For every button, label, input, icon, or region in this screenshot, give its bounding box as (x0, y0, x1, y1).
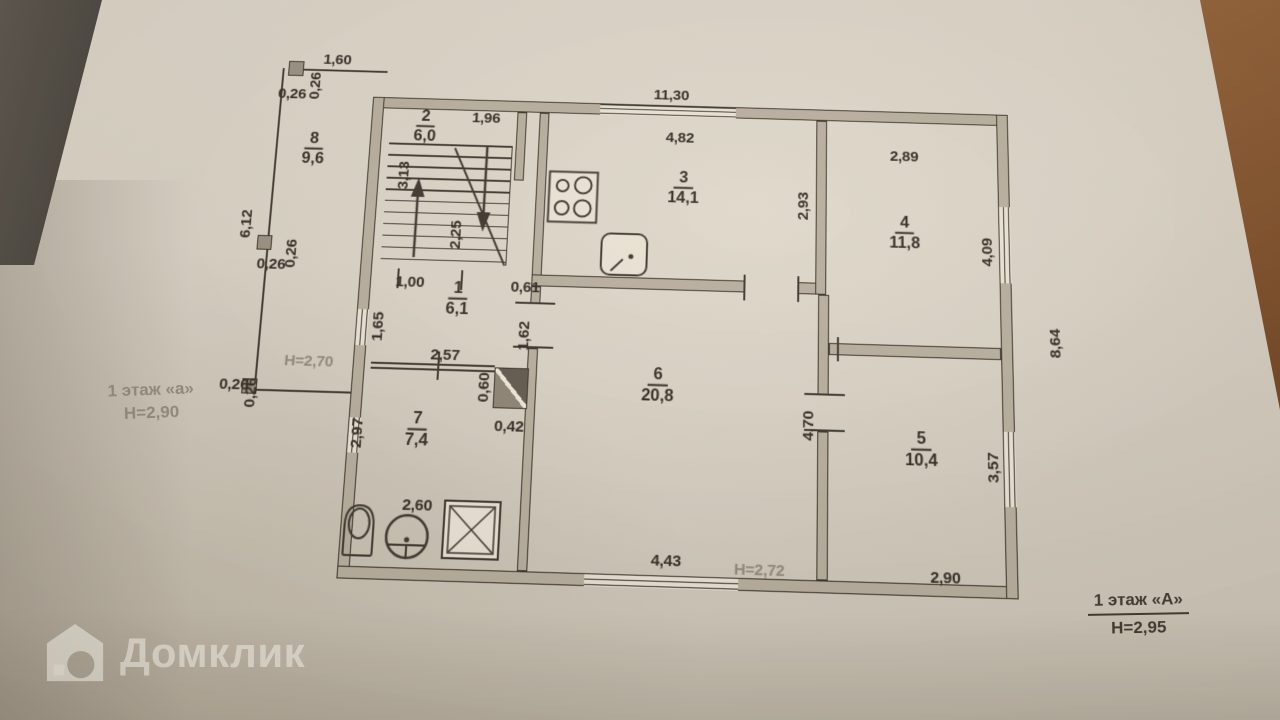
room-area: 9,6 (301, 149, 325, 167)
window-symbol (600, 103, 736, 118)
room-label-3: 3 14,1 (667, 169, 700, 207)
room-area: 7,4 (404, 430, 429, 450)
dimension-label: 3,13 (395, 161, 415, 189)
door-opening-tick (804, 393, 845, 396)
window-symbol (998, 207, 1012, 284)
ventilation-duct (493, 367, 530, 409)
dimension-label: 4,70 (800, 411, 819, 441)
dimension-label: 2,57 (430, 346, 460, 365)
annex-floor-label: 1 этаж «а» Н=2,90 (107, 379, 195, 425)
dimension-label: 0,26 (241, 378, 262, 408)
window-symbol (584, 573, 738, 591)
room-number: 6 (648, 366, 668, 387)
window-symbol (1003, 432, 1017, 508)
dimension-label: 0,60 (475, 372, 495, 402)
door-opening-tick (743, 275, 745, 301)
domclick-watermark: Домклик (44, 622, 305, 684)
wall-segment (829, 343, 1001, 360)
dimension-label: 2,89 (890, 148, 918, 166)
dimension-label: 1,96 (472, 110, 501, 128)
room-number: 1 (448, 279, 468, 300)
annex-floor-title: 1 этаж «а» (107, 379, 194, 402)
room-area: 20,8 (641, 386, 674, 406)
wall-segment (818, 295, 830, 396)
washbasin-icon (381, 511, 432, 561)
room-label-1: 1 6,1 (445, 279, 470, 318)
dimension-label: 1,00 (395, 273, 425, 292)
wall-segment (815, 121, 827, 295)
floor-plan-photo: 8 9,6 2 6,0 3 14,1 4 11,8 1 6,1 6 20,8 7… (0, 0, 1280, 720)
toilet-icon (336, 499, 381, 558)
window-symbol (354, 309, 369, 345)
kitchen-sink-icon (598, 231, 649, 278)
room-area: 10,4 (905, 451, 938, 471)
domclick-brand-text: Домклик (120, 629, 305, 677)
door-opening-tick (797, 276, 799, 302)
domclick-house-icon (44, 622, 106, 684)
main-floor-title: 1 этаж «А» (1088, 589, 1190, 616)
dimension-label: 0,61 (510, 279, 540, 298)
main-floor-height: Н=2,95 (1088, 614, 1189, 639)
porch-column (288, 61, 305, 76)
dimension-label: 0,26 (306, 72, 326, 99)
porch-column (256, 235, 272, 250)
wall-segment (816, 431, 828, 580)
room-number: 5 (911, 430, 931, 452)
room-label-2: 2 6,0 (413, 108, 438, 145)
room-area: 6,1 (445, 300, 469, 319)
porch-wall (253, 389, 362, 394)
stair-direction-arrows (378, 135, 519, 274)
room-number: 4 (895, 214, 914, 234)
dimension-label: 4,09 (979, 238, 997, 267)
dimension-label: 1,65 (369, 312, 389, 342)
room-label-8: 8 9,6 (301, 130, 326, 167)
dimension-label: 6,12 (237, 210, 257, 239)
stove-icon (546, 170, 599, 224)
dimension-label: 2,93 (795, 192, 813, 220)
room-label-7: 7 7,4 (404, 409, 430, 450)
dimension-label: 3,57 (985, 452, 1004, 483)
dimension-label: 2,97 (347, 418, 368, 449)
dimension-label: 0,42 (494, 417, 524, 436)
partition-wall (371, 367, 495, 372)
dimension-label: 2,25 (447, 220, 467, 249)
door-opening-tick (515, 302, 555, 305)
dimension-tick (837, 337, 839, 361)
dimension-label: 1,62 (515, 321, 535, 351)
room-area: 11,8 (889, 234, 920, 253)
dimension-label: 1,60 (323, 52, 352, 69)
annex-floor-height: Н=2,90 (108, 398, 195, 424)
room-number: 8 (304, 130, 324, 150)
dimension-label: 11,30 (653, 87, 689, 105)
height-note: Н=2,70 (283, 352, 333, 372)
dimension-label: 0,26 (277, 86, 306, 104)
floor-plan-drawing: 8 9,6 2 6,0 3 14,1 4 11,8 1 6,1 6 20,8 7… (214, 40, 1098, 670)
shower-cabin-icon (440, 498, 503, 562)
room-label-6: 6 20,8 (641, 365, 675, 405)
room-area: 6,0 (413, 127, 436, 145)
dimension-label: 0,26 (282, 239, 302, 268)
dimension-label: 8,64 (1047, 329, 1066, 359)
dimension-label: 4,43 (650, 552, 681, 572)
dimension-label: 2,90 (930, 569, 960, 589)
room-number: 3 (674, 169, 693, 189)
wooden-table-corner (1200, 0, 1280, 410)
porch-wall (253, 68, 284, 391)
room-number: 7 (407, 409, 428, 431)
room-area: 14,1 (667, 189, 699, 208)
dimension-label: 4,82 (665, 130, 694, 148)
height-note: Н=2,72 (734, 560, 785, 581)
room-number: 2 (416, 108, 436, 128)
room-label-4: 4 11,8 (889, 214, 920, 253)
room-label-5: 5 10,4 (905, 429, 938, 470)
main-floor-label: 1 этаж «А» Н=2,95 (1088, 589, 1190, 639)
dimension-label: 2,60 (402, 496, 433, 516)
